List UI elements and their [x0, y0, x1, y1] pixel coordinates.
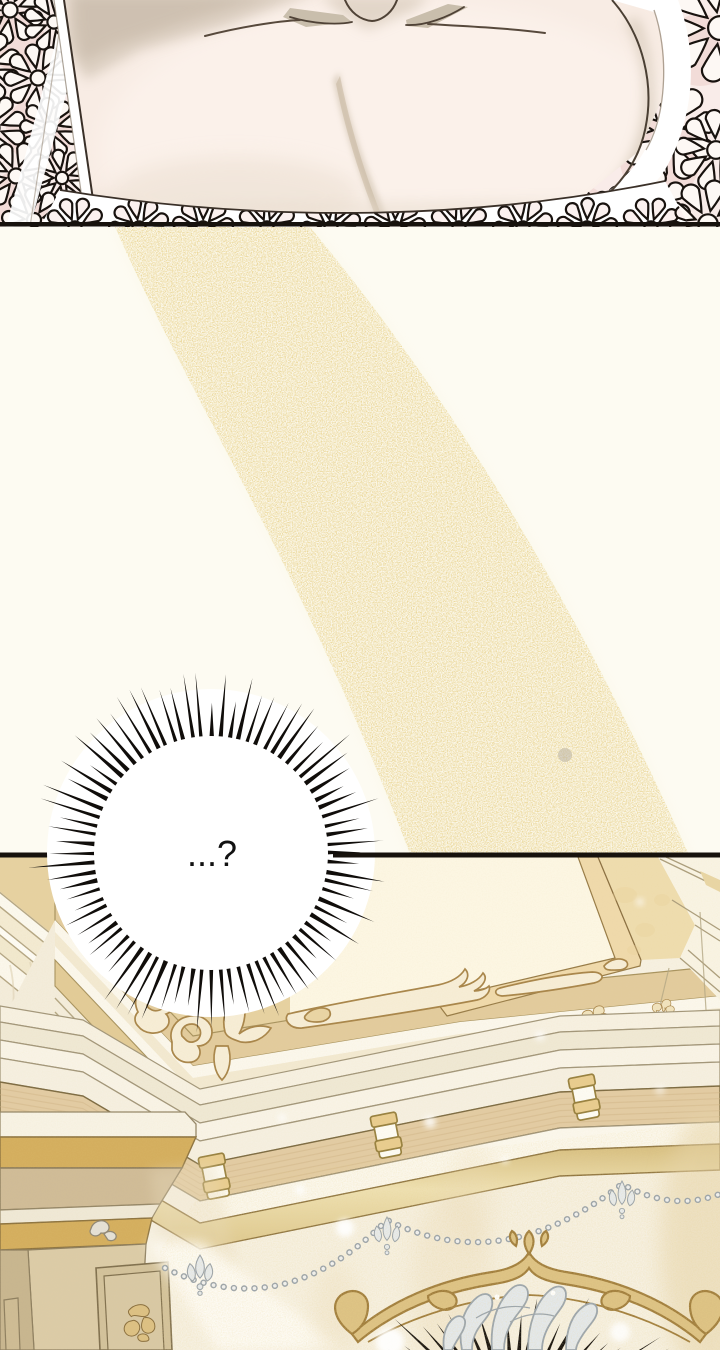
svg-text:...?: ...? [187, 833, 237, 874]
